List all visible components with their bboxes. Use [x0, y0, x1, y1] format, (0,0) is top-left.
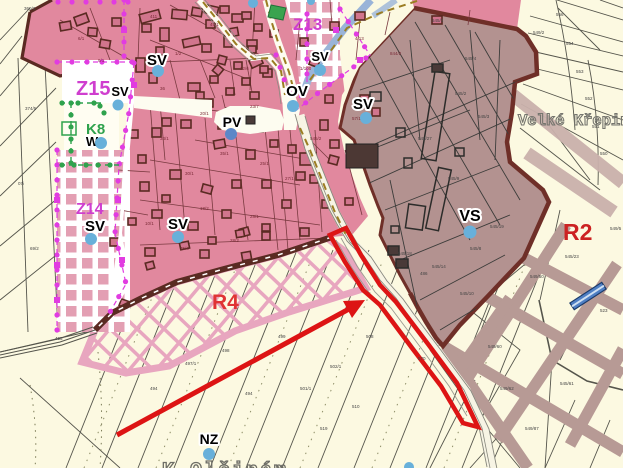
svg-text:28/3: 28/3	[230, 238, 239, 243]
svg-text:545/23: 545/23	[565, 254, 579, 259]
svg-text:30/1: 30/1	[185, 171, 194, 176]
svg-text:545/8: 545/8	[470, 246, 482, 251]
svg-text:6/1: 6/1	[78, 36, 85, 41]
svg-text:34/1: 34/1	[160, 136, 169, 141]
svg-text:23/7: 23/7	[250, 104, 259, 109]
svg-text:549/50: 549/50	[530, 274, 544, 279]
svg-text:545/2: 545/2	[310, 136, 322, 141]
svg-text:VS: VS	[459, 208, 481, 225]
svg-text:SV: SV	[85, 218, 105, 235]
svg-text:844/2: 844/2	[390, 51, 402, 56]
svg-text:25/1: 25/1	[260, 161, 269, 166]
svg-text:550: 550	[600, 151, 608, 156]
svg-text:549/60: 549/60	[488, 344, 502, 349]
svg-text:411: 411	[150, 14, 158, 19]
svg-text:10/1: 10/1	[145, 221, 154, 226]
svg-text:554: 554	[566, 41, 574, 46]
svg-text:69/2: 69/2	[30, 246, 39, 251]
svg-text:501/1: 501/1	[300, 386, 312, 391]
svg-text:545/14: 545/14	[432, 264, 446, 269]
svg-text:486: 486	[420, 271, 428, 276]
svg-text:SV: SV	[168, 216, 188, 233]
svg-text:Z14: Z14	[76, 201, 104, 218]
svg-text:545/3: 545/3	[478, 114, 490, 119]
svg-text:549/62: 549/62	[500, 386, 514, 391]
svg-text:570: 570	[418, 356, 426, 361]
svg-text:57/1: 57/1	[352, 116, 361, 121]
svg-text:9/1: 9/1	[98, 58, 105, 63]
svg-text:R4: R4	[212, 291, 239, 314]
svg-text:SV: SV	[111, 84, 129, 99]
svg-text:1/2: 1/2	[175, 51, 182, 56]
svg-text:549/2: 549/2	[533, 30, 545, 35]
svg-text:553: 553	[576, 69, 584, 74]
svg-text:545/2: 545/2	[455, 91, 467, 96]
svg-text:4/13: 4/13	[355, 36, 364, 41]
svg-text:545/61: 545/61	[560, 381, 574, 386]
svg-text:545/27: 545/27	[418, 136, 432, 141]
svg-text:556: 556	[556, 12, 564, 17]
svg-text:36: 36	[160, 86, 166, 91]
svg-text:494: 494	[150, 386, 158, 391]
svg-text:545/18: 545/18	[398, 251, 412, 256]
svg-text:27/1: 27/1	[285, 176, 294, 181]
svg-text:455: 455	[55, 336, 63, 341]
svg-text:49/1: 49/1	[210, 22, 219, 27]
svg-text:374/5: 374/5	[25, 106, 37, 111]
svg-text:75/4: 75/4	[180, 246, 189, 251]
svg-text:549/87: 549/87	[525, 426, 539, 431]
svg-text:K Olšinám: K Olšinám	[162, 460, 288, 468]
svg-text:545/9: 545/9	[448, 176, 460, 181]
svg-text:508: 508	[366, 334, 374, 339]
svg-text:35/1: 35/1	[220, 151, 229, 156]
svg-text:R2: R2	[563, 219, 592, 245]
svg-text:545/1: 545/1	[432, 18, 444, 23]
svg-text:OV: OV	[286, 83, 308, 100]
svg-text:552: 552	[585, 96, 593, 101]
svg-text:1/100: 1/100	[300, 66, 312, 71]
svg-text:Z15: Z15	[76, 78, 110, 100]
svg-text:SV: SV	[353, 96, 373, 113]
svg-text:12/6: 12/6	[240, 66, 249, 71]
svg-text:18/2: 18/2	[200, 206, 209, 211]
svg-text:549/5: 549/5	[610, 226, 622, 231]
svg-text:497/1: 497/1	[185, 361, 197, 366]
svg-text:523: 523	[600, 308, 608, 313]
svg-text:07i: 07i	[18, 181, 24, 186]
svg-text:SV: SV	[311, 49, 329, 64]
svg-text:519: 519	[320, 426, 328, 431]
svg-text:NZ: NZ	[200, 431, 219, 447]
svg-text:K8: K8	[86, 121, 105, 138]
svg-text:510: 510	[352, 404, 360, 409]
svg-text:28/1: 28/1	[250, 214, 259, 219]
svg-text:Z13: Z13	[293, 15, 322, 34]
svg-text:545/10: 545/10	[460, 291, 474, 296]
svg-text:502/1: 502/1	[330, 364, 342, 369]
svg-text:360/3: 360/3	[24, 6, 36, 11]
svg-text:498: 498	[222, 348, 230, 353]
svg-text:Velké Křepin: Velké Křepin	[518, 112, 623, 130]
svg-text:494: 494	[245, 391, 253, 396]
svg-text:545/4: 545/4	[465, 56, 477, 61]
svg-text:499: 499	[278, 334, 286, 339]
svg-text:545/19: 545/19	[490, 224, 504, 229]
svg-text:PV: PV	[223, 114, 242, 130]
svg-text:20/1: 20/1	[200, 111, 209, 116]
